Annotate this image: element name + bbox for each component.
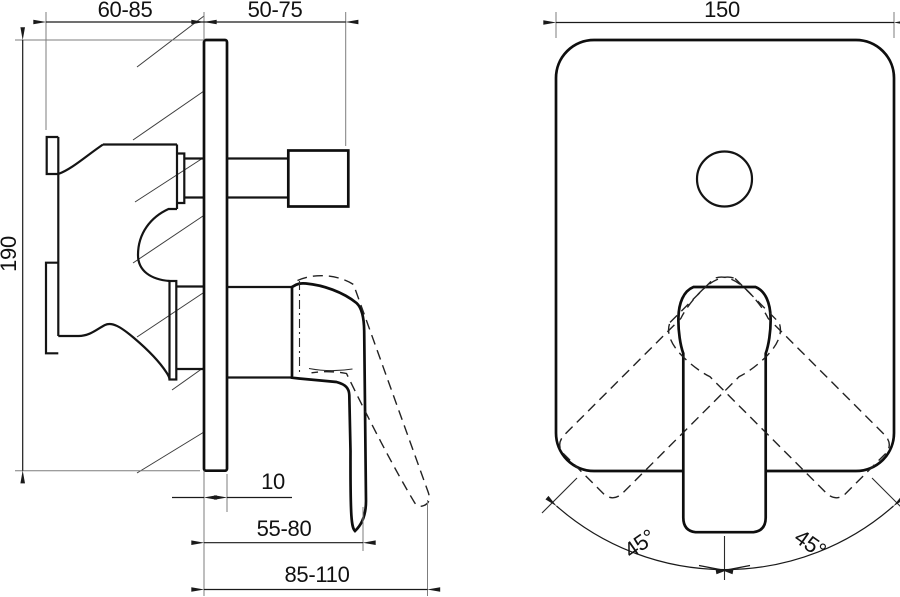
dim-text-lever-reach-closed: 55-80 [257, 516, 312, 541]
mounting-tab-top [47, 137, 59, 174]
dim-text-knob-projection: 50-75 [248, 0, 303, 22]
side-view: 60-85 50-75 190 10 55-80 85-110 [0, 0, 429, 596]
diverter-knob-side [288, 151, 348, 207]
diverter-spindle [227, 159, 288, 198]
mounting-tab-bottom [46, 263, 58, 354]
lever-handle-front [678, 287, 770, 532]
swing-tick-right [872, 478, 900, 513]
dim-text-swing-right: 45° [790, 524, 831, 563]
mixer-body-side [46, 137, 204, 380]
swing-tick-left [542, 478, 577, 513]
front-view: 150 45° 45° [542, 0, 900, 580]
wall-hatch [133, 16, 204, 473]
dim-text-plate-thickness: 10 [261, 469, 285, 494]
escutcheon-plate-side [204, 40, 227, 471]
dim-text-plate-height: 190 [0, 236, 21, 272]
cartridge-flange [170, 281, 177, 380]
cartridge-trim [227, 287, 292, 378]
technical-drawing-canvas: 60-85 50-75 190 10 55-80 85-110 150 45° [0, 0, 900, 597]
cartridge-sleeve [176, 287, 204, 370]
spindle-behind-wall [184, 159, 204, 198]
dim-text-lever-reach-open: 85-110 [284, 562, 349, 587]
shower-mixer-drawing: 60-85 50-75 190 10 55-80 85-110 150 45° [0, 0, 900, 597]
dim-text-plate-width: 150 [704, 0, 740, 22]
dim-text-swing-left: 45° [619, 524, 660, 563]
lever-handle-side [292, 283, 366, 531]
dim-text-body-depth: 60-85 [98, 0, 153, 22]
